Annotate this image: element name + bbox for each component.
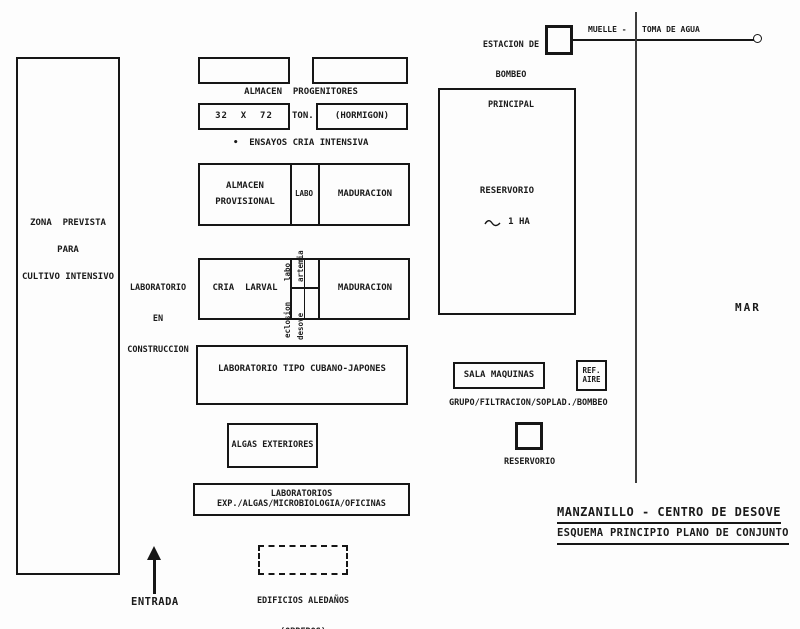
- ref-aire-box: REF. AIRE: [576, 360, 607, 391]
- zona-line3: CULTIVO INTENSIVO: [18, 273, 118, 283]
- cria-mid-divider: [290, 287, 320, 289]
- entrada-arrow-icon: [147, 546, 161, 560]
- lab-construccion-l3: CONSTRUCCION: [122, 346, 194, 355]
- algas-box: ALGAS EXTERIORES: [227, 423, 318, 468]
- almacen-provisional-l2: PROVISIONAL: [215, 198, 275, 208]
- toma-agua-circle-icon: [753, 34, 762, 43]
- entrada-label: ENTRADA: [131, 597, 179, 609]
- site-plan-diagram: ZONA PREVISTA PARA CULTIVO INTENSIVO LAB…: [0, 0, 800, 629]
- hormigon-box: (HORMIGON): [316, 103, 408, 130]
- lab-construccion-l1: LABORATORIO: [122, 284, 194, 293]
- muelle-line: [573, 39, 757, 41]
- lab-cubano-label: LABORATORIO TIPO CUBANO-JAPONES: [218, 365, 386, 375]
- ton-label: TON.: [292, 112, 314, 122]
- entrada-arrow-shaft: [153, 559, 156, 594]
- reservorio-big-box: RESERVORIO 1 HA: [438, 88, 576, 315]
- zona-cultivo-box: ZONA PREVISTA PARA CULTIVO INTENSIVO: [16, 57, 120, 575]
- mar-label: MAR: [735, 302, 761, 314]
- laboratorios-l2: EXP./ALGAS/MICROBIOLOGIA/OFICINAS: [217, 500, 386, 509]
- desove-vertical-label: desove: [296, 313, 305, 340]
- hormigon-label: (HORMIGON): [335, 112, 389, 122]
- ref-aire-l2: AIRE: [582, 376, 600, 384]
- provisional-building-box: ALMACEN PROVISIONAL LABO MADURACION: [198, 163, 410, 226]
- grupo-filtracion-label: GRUPO/FILTRACION/SOPLAD./BOMBEO: [449, 399, 608, 408]
- zona-line2: PARA: [18, 246, 118, 256]
- labo-cell-label: LABO: [295, 190, 313, 198]
- edificios-aledanos-box: [258, 545, 348, 575]
- almacen-progenitores-label: ALMACEN PROGENITORES: [198, 88, 404, 98]
- sala-maquinas-label: SALA MAQUINAS: [464, 371, 534, 381]
- plan-title-line2: ESQUEMA PRINCIPIO PLANO DE CONJUNTO: [557, 528, 789, 545]
- artemia-vertical-label: artemia: [296, 250, 305, 282]
- eclosion-vertical-label: eclosion: [283, 302, 292, 338]
- cria-larval-label: CRIA LARVAL: [212, 284, 277, 294]
- edificios-labels: EDIFICIOS ALEDAÑOS (OBREROS) EN CONSTRUC…: [228, 578, 378, 629]
- algas-label: ALGAS EXTERIORES: [232, 441, 314, 450]
- reservorio-small-box: [515, 422, 543, 450]
- estacion-l2: BOMBEO: [477, 71, 545, 80]
- labo-vertical-label: labo: [283, 263, 292, 281]
- ensayos-label: • ENSAYOS CRIA INTENSIVA: [233, 139, 368, 149]
- reservorio-big-label: RESERVORIO: [440, 187, 574, 197]
- reservorio-area-label: 1 HA: [508, 218, 530, 228]
- lab-cubano-box: LABORATORIO TIPO CUBANO-JAPONES: [196, 345, 408, 405]
- zona-line1: ZONA PREVISTA: [18, 219, 118, 229]
- laboratorios-box: LABORATORIOS EXP./ALGAS/MICROBIOLOGIA/OF…: [193, 483, 410, 516]
- approx-wave-icon: [484, 218, 501, 228]
- edificios-l1: EDIFICIOS ALEDAÑOS: [228, 597, 378, 606]
- plan-title-line1: MANZANILLO - CENTRO DE DESOVE: [557, 506, 781, 524]
- estacion-bombeo-box: [545, 25, 573, 55]
- sala-maquinas-box: SALA MAQUINAS: [453, 362, 545, 389]
- lab-construccion-label: LABORATORIO EN CONSTRUCCION: [122, 265, 194, 374]
- progenitores-tank-left-box: [198, 57, 290, 84]
- progenitores-tank-right-box: [312, 57, 408, 84]
- laboratorios-l1: LABORATORIOS: [271, 490, 332, 499]
- lab-construccion-l2: EN: [122, 315, 194, 324]
- muelle-pier-line: [635, 12, 637, 483]
- estacion-l1: ESTACION DE: [477, 41, 545, 50]
- almacen-provisional-l1: ALMACEN: [226, 182, 264, 192]
- maduracion2-label: MADURACION: [338, 284, 392, 294]
- maduracion1-label: MADURACION: [338, 190, 392, 200]
- ref-aire-l1: REF.: [582, 367, 600, 375]
- toma-agua-label: TOMA DE AGUA: [642, 26, 700, 35]
- tank-32x72-box: 32 X 72: [198, 103, 290, 130]
- reservorio-small-label: RESERVORIO: [504, 458, 555, 467]
- muelle-label: MUELLE -: [588, 26, 627, 35]
- tank-size-label: 32 X 72: [215, 112, 273, 122]
